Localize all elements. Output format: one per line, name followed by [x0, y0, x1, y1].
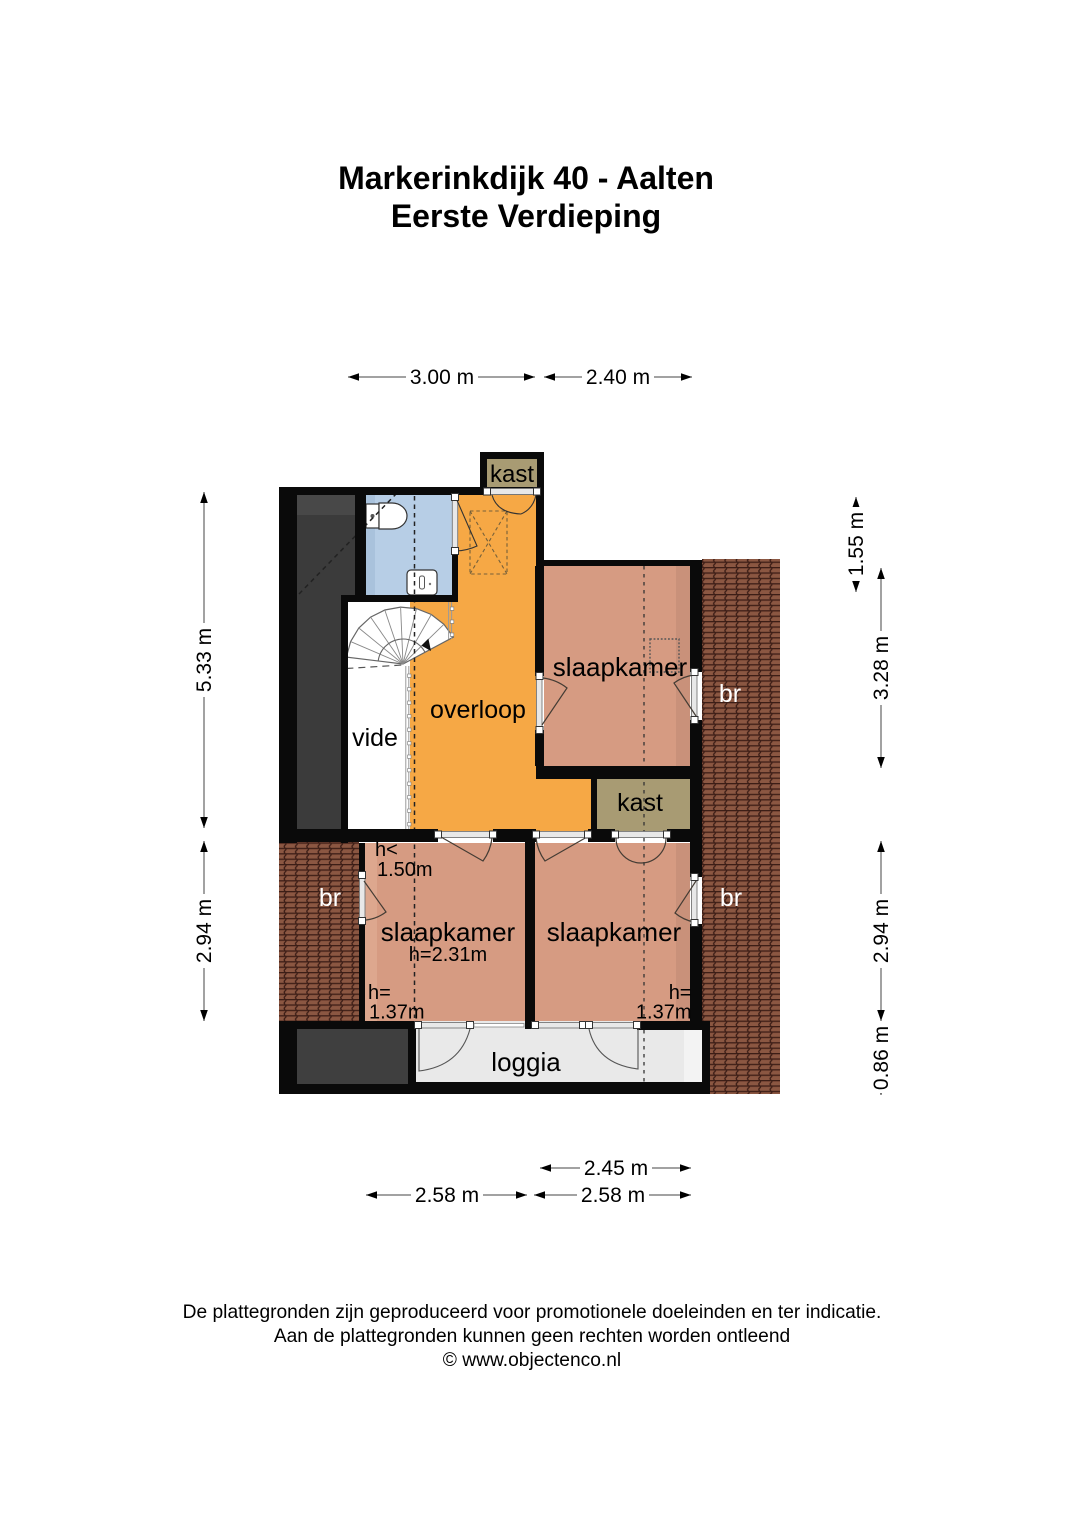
svg-text:1.50m: 1.50m	[377, 859, 433, 881]
svg-text:overloop: overloop	[430, 696, 526, 724]
svg-text:0.86 m: 0.86 m	[870, 1026, 893, 1090]
svg-text:De plattegronden zijn geproduc: De plattegronden zijn geproduceerd voor …	[183, 1302, 882, 1323]
svg-text:loggia: loggia	[491, 1047, 561, 1077]
svg-text:vide: vide	[352, 724, 398, 752]
svg-text:slaapkamer: slaapkamer	[553, 652, 688, 682]
svg-text:2.94 m: 2.94 m	[193, 899, 216, 963]
svg-text:slaapkamer: slaapkamer	[381, 917, 516, 947]
svg-text:5.33 m: 5.33 m	[193, 628, 216, 692]
svg-text:2.40 m: 2.40 m	[586, 366, 650, 389]
svg-text:1.55 m: 1.55 m	[845, 512, 868, 576]
svg-text:3.00 m: 3.00 m	[410, 366, 474, 389]
svg-text:br: br	[319, 884, 341, 912]
svg-text:h<: h<	[375, 839, 398, 861]
svg-text:1.37m: 1.37m	[369, 1002, 425, 1024]
svg-text:slaapkamer: slaapkamer	[547, 917, 682, 947]
svg-text:© www.objectenco.nl: © www.objectenco.nl	[443, 1350, 621, 1371]
svg-text:2.45 m: 2.45 m	[584, 1157, 648, 1180]
svg-text:Markerinkdijk 40 - Aalten: Markerinkdijk 40 - Aalten	[338, 160, 714, 196]
svg-text:br: br	[720, 884, 742, 912]
svg-text:1.37m: 1.37m	[636, 1002, 692, 1024]
svg-text:kast: kast	[617, 789, 663, 817]
svg-text:2.58 m: 2.58 m	[581, 1184, 645, 1207]
svg-text:3.28 m: 3.28 m	[870, 636, 893, 700]
svg-text:h=2.31m: h=2.31m	[409, 944, 487, 966]
svg-text:2.94 m: 2.94 m	[870, 899, 893, 963]
svg-text:br: br	[719, 680, 741, 708]
svg-text:Aan de plattegronden kunnen ge: Aan de plattegronden kunnen geen rechten…	[274, 1326, 790, 1347]
svg-text:2.58 m: 2.58 m	[415, 1184, 479, 1207]
svg-text:Eerste Verdieping: Eerste Verdieping	[391, 198, 661, 234]
svg-text:kast: kast	[490, 461, 534, 488]
